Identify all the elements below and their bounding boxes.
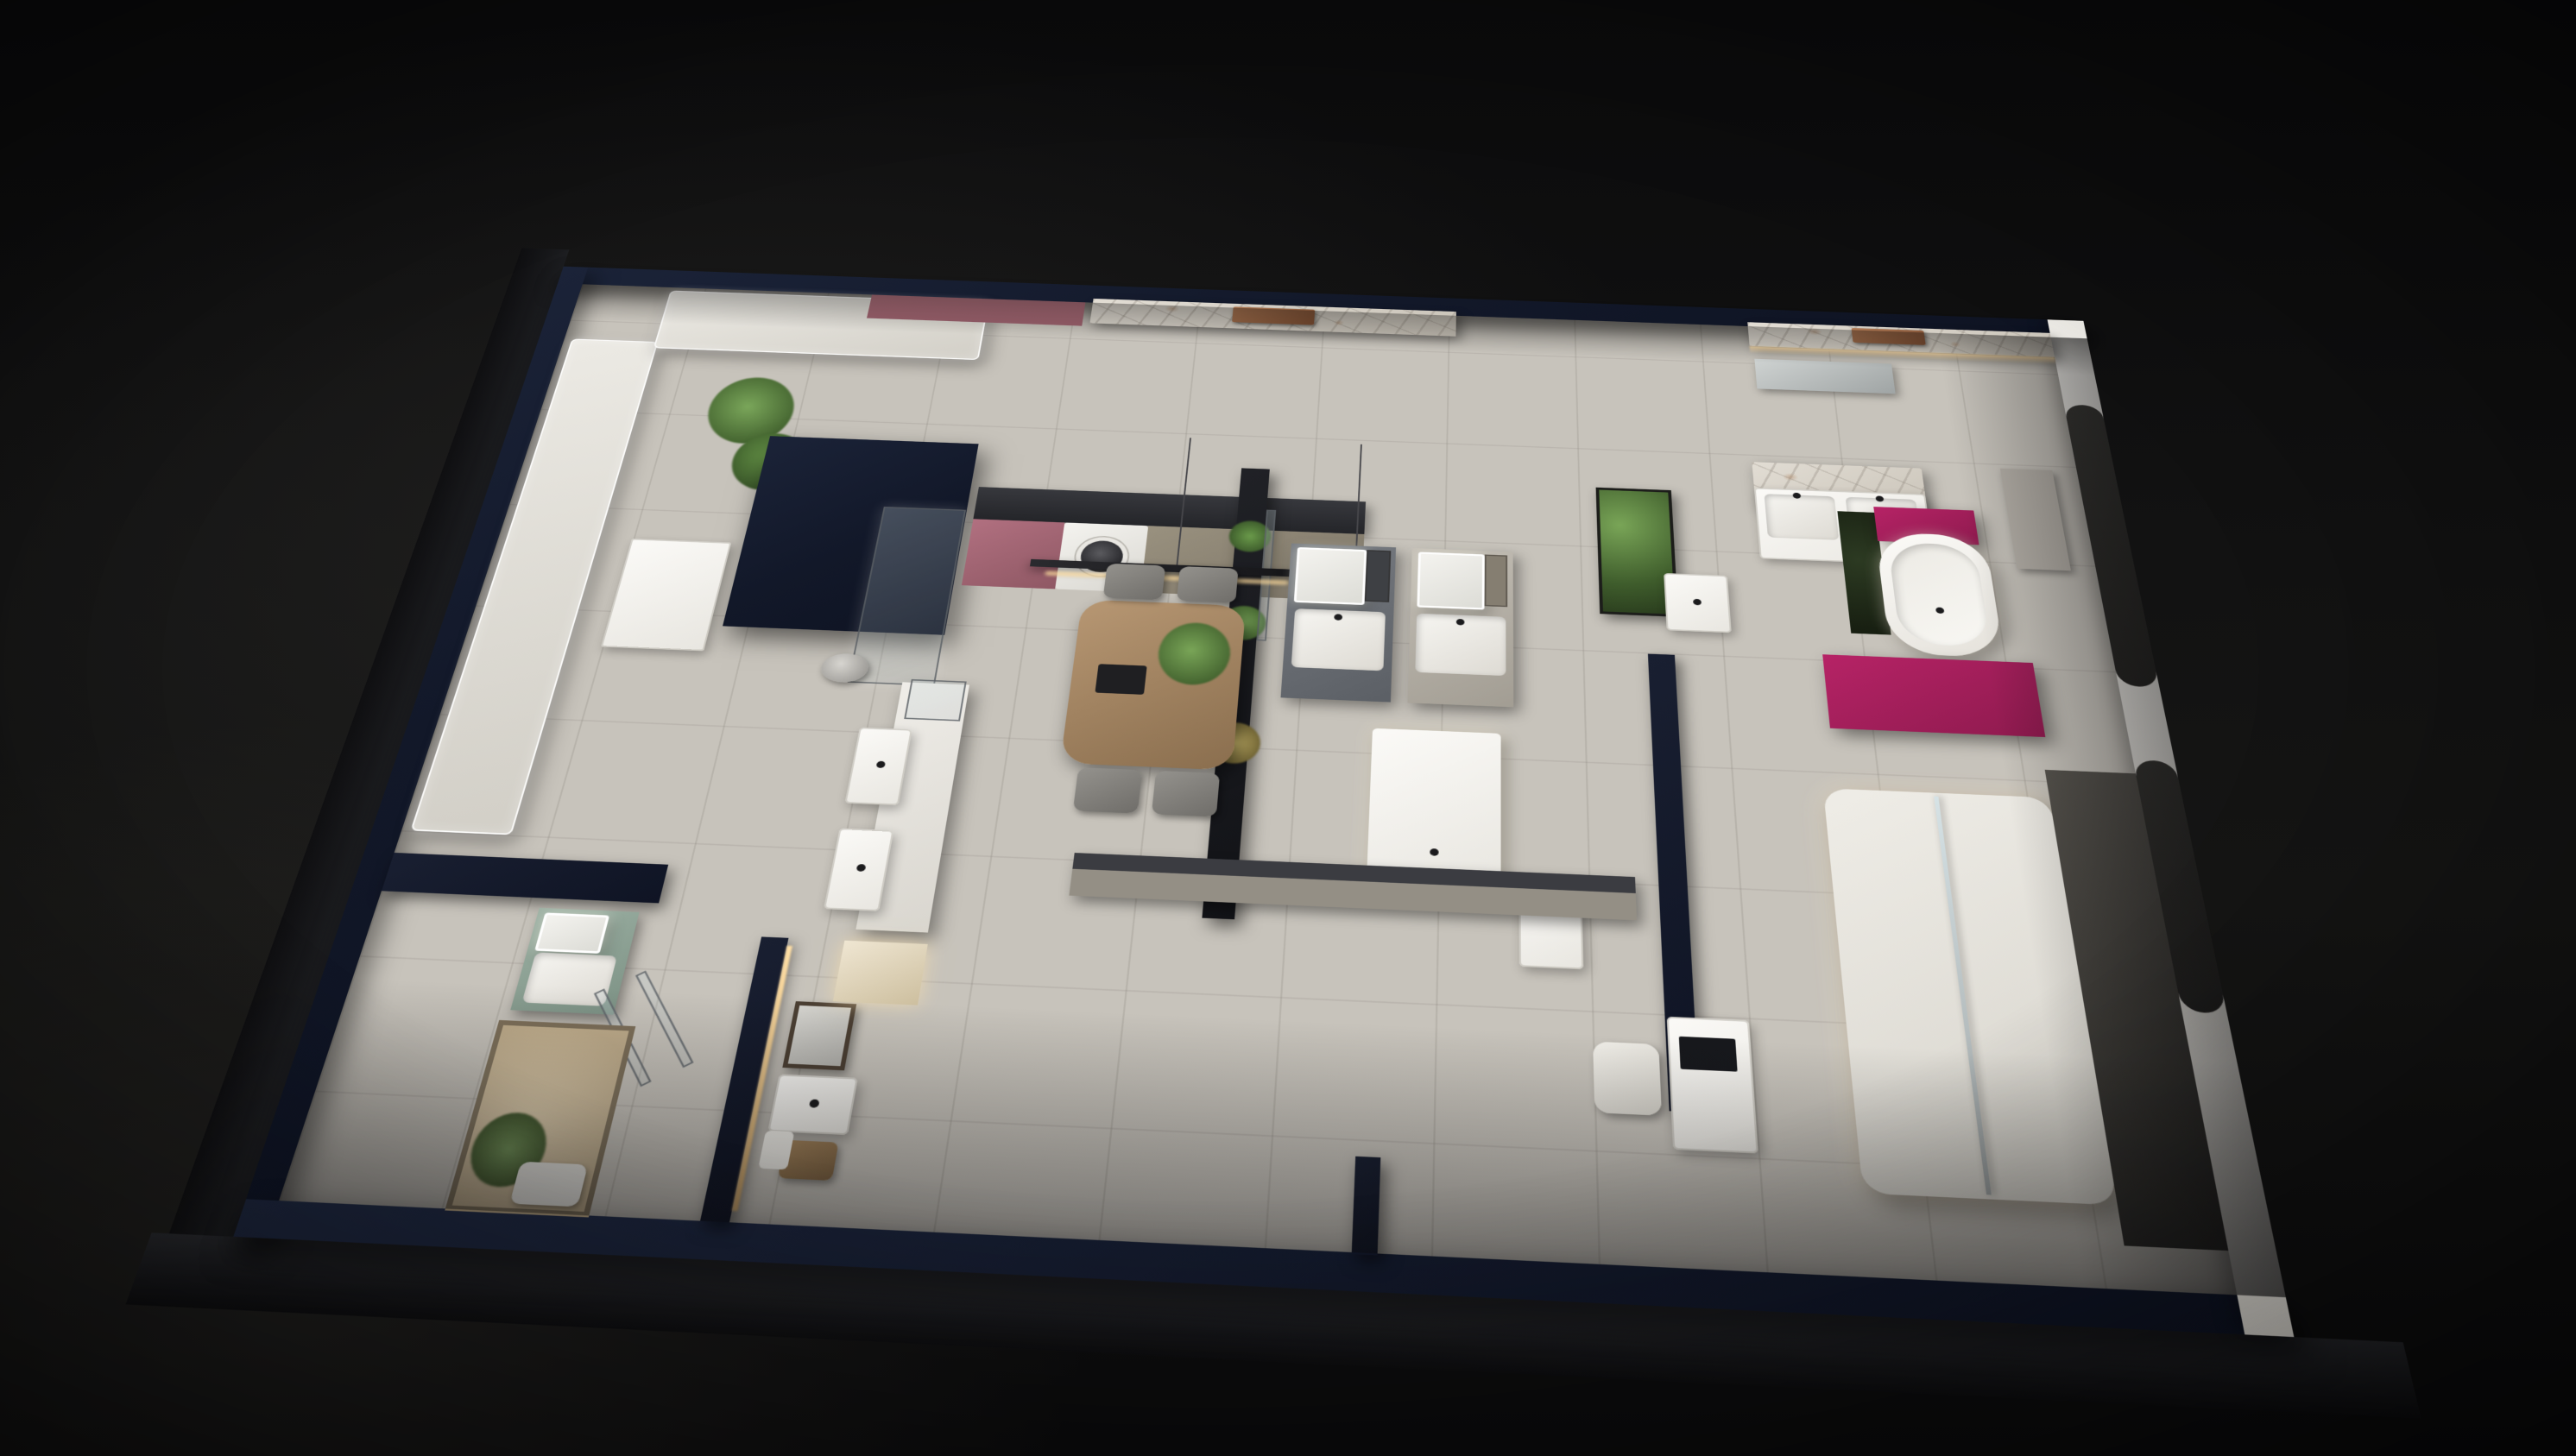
faucet [1456,619,1465,626]
led-display-shelf [833,941,928,1005]
faucet [1693,599,1702,606]
display-wall-glass-top [904,679,967,722]
vanity-dark-gray [1280,544,1396,703]
floorplan [82,215,2440,1441]
showroom-render [0,0,2576,1456]
vanity-mirror [534,912,609,954]
vanity-side-shelf [1485,554,1508,607]
vanity-mirror [1417,552,1484,609]
dining-chair [1073,767,1142,814]
vanity-side-shelf [1365,550,1392,602]
vanity-mirror [1294,547,1367,605]
wall-hung-basin-display [1664,573,1732,633]
island-drain [1430,848,1438,856]
dining-chair [1103,564,1166,601]
faucet [876,761,886,768]
kitchen-pink-cabinets [962,519,1064,589]
dining-chair [1152,771,1220,817]
vanity-basin [1765,494,1840,540]
faucet [856,864,867,872]
dining-chair [1177,566,1239,603]
faucet [1875,495,1884,501]
desk-brand-logo [618,587,719,591]
table-plant [1155,621,1233,686]
faucet [1792,493,1801,499]
dining-table [1060,600,1246,771]
vanity-light-gray [1407,548,1513,707]
serving-tray [1095,664,1146,695]
